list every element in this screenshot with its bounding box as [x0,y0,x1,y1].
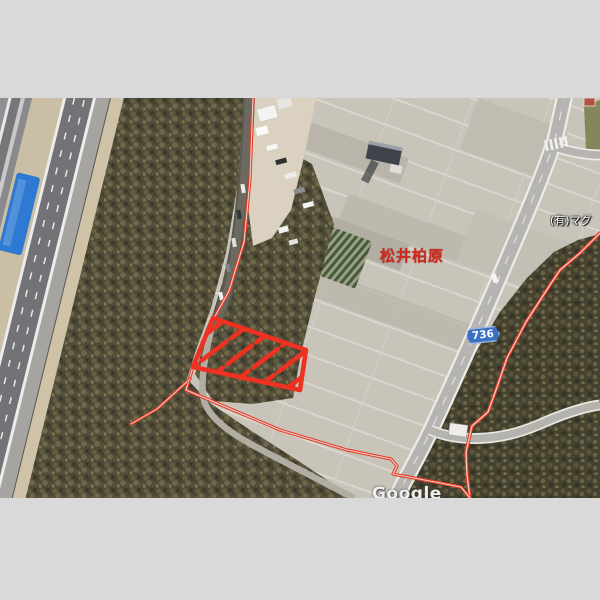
red-roof-building [584,98,595,106]
map-canvas[interactable]: 松井柏原 (有)マグ 736 Google [0,98,600,498]
top-letterbox [0,0,600,98]
satellite-imagery [0,98,600,498]
bottom-letterbox [0,498,600,600]
white-building [448,423,467,437]
screenshot-frame: 松井柏原 (有)マグ 736 Google [0,0,600,600]
grass-patch [584,100,600,156]
